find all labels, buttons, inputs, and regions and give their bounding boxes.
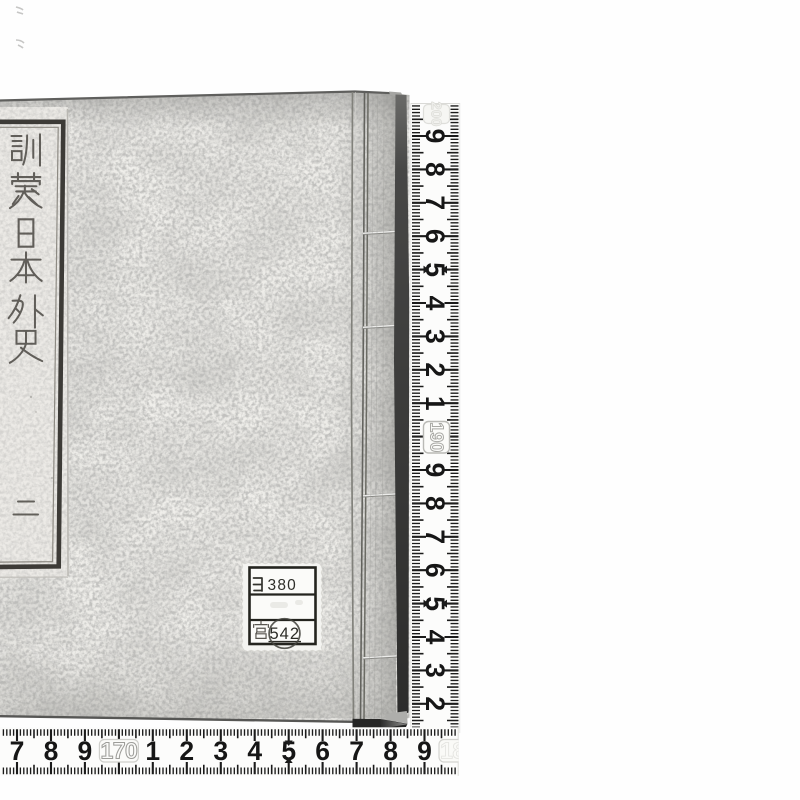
svg-text:2: 2 xyxy=(420,696,450,711)
svg-text:8: 8 xyxy=(44,736,59,766)
svg-text:9: 9 xyxy=(78,736,93,766)
svg-text:9: 9 xyxy=(420,463,450,478)
svg-text:1: 1 xyxy=(420,396,450,411)
svg-text:2: 2 xyxy=(179,736,194,766)
svg-text:200: 200 xyxy=(427,101,444,126)
svg-text:6: 6 xyxy=(315,736,330,766)
svg-text:6: 6 xyxy=(420,563,450,578)
svg-text:4: 4 xyxy=(420,296,450,311)
svg-text:3: 3 xyxy=(420,329,450,344)
svg-text:7: 7 xyxy=(349,736,364,766)
svg-text:542: 542 xyxy=(270,625,301,643)
svg-text:7: 7 xyxy=(420,529,450,544)
svg-text:3: 3 xyxy=(420,663,450,678)
svg-text:3: 3 xyxy=(213,736,228,766)
svg-text:9: 9 xyxy=(420,129,450,144)
svg-text:170: 170 xyxy=(100,738,137,764)
svg-text:380: 380 xyxy=(268,577,297,594)
svg-text:8: 8 xyxy=(420,162,450,177)
svg-text:8: 8 xyxy=(383,736,398,766)
svg-text:2: 2 xyxy=(420,362,450,377)
svg-text:1: 1 xyxy=(145,736,160,766)
svg-text:7: 7 xyxy=(420,195,450,210)
svg-text:7: 7 xyxy=(10,736,25,766)
svg-text:8: 8 xyxy=(420,496,450,511)
svg-text:4: 4 xyxy=(420,630,450,645)
svg-text:9: 9 xyxy=(417,736,432,766)
svg-text:4: 4 xyxy=(247,736,262,766)
svg-text:190: 190 xyxy=(427,422,447,452)
svg-text:6: 6 xyxy=(420,229,450,244)
